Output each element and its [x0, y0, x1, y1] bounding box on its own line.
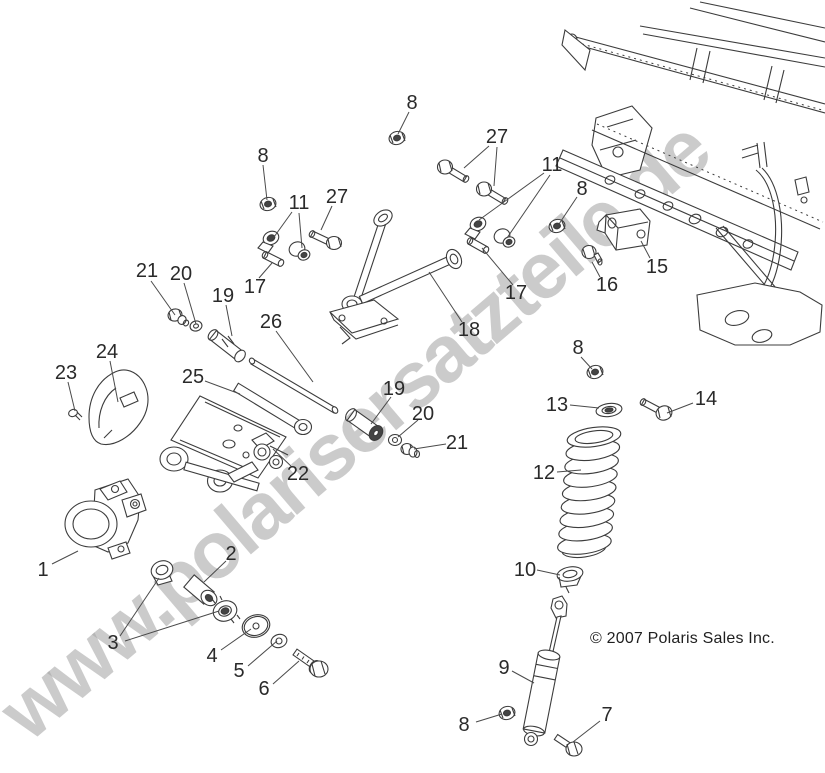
guard-art	[68, 370, 148, 445]
callout-17: 17	[244, 276, 266, 298]
callout-8: 8	[406, 92, 417, 114]
callout-15: 15	[646, 256, 668, 278]
callout-3: 3	[107, 632, 118, 654]
callout-8: 8	[576, 178, 587, 200]
callout-22: 22	[287, 463, 309, 485]
callout-8: 8	[572, 337, 583, 359]
leader-line	[371, 397, 391, 424]
upper-a-arm-art	[330, 207, 464, 344]
leader-line	[125, 611, 219, 641]
bolt-art	[438, 160, 509, 205]
flange-nut-art	[498, 705, 517, 722]
leader-line	[559, 197, 577, 224]
leader-line	[221, 629, 251, 650]
leader-line	[321, 206, 332, 230]
callout-16: 16	[596, 274, 618, 296]
parts-diagram: www.polarisersatzteile.de	[0, 0, 825, 773]
leader-line	[667, 403, 693, 413]
shock-art	[523, 596, 582, 756]
leader-line	[494, 147, 497, 186]
callout-13: 13	[546, 394, 568, 416]
callout-7: 7	[601, 704, 612, 726]
callout-27: 27	[486, 126, 508, 148]
callout-24: 24	[96, 341, 118, 363]
leader-line	[274, 212, 292, 237]
leader-line	[226, 305, 232, 336]
leader-line	[570, 405, 599, 408]
callout-5: 5	[233, 660, 244, 682]
diagram-art: 8271188112715161717188261920212423252219…	[0, 0, 825, 773]
flange-nut-art	[548, 218, 567, 235]
leader-line	[476, 714, 502, 722]
leader-line	[537, 570, 560, 575]
callout-14: 14	[695, 388, 717, 410]
callout-20: 20	[170, 263, 192, 285]
callout-23: 23	[55, 362, 77, 384]
leader-line	[512, 671, 534, 683]
knuckle-art	[65, 479, 146, 559]
callout-1: 1	[37, 559, 48, 581]
leader-line	[52, 551, 78, 564]
callout-9: 9	[498, 657, 509, 679]
callout-21: 21	[446, 432, 468, 454]
leader-line	[263, 165, 267, 200]
callout-12: 12	[533, 462, 555, 484]
callout-11: 11	[542, 154, 563, 176]
copyright-text: © 2007 Polaris Sales Inc.	[590, 630, 775, 648]
leader-line	[68, 382, 75, 411]
flange-nut-art	[259, 196, 278, 213]
callout-2: 2	[225, 543, 236, 565]
callout-6: 6	[258, 678, 269, 700]
leader-line	[414, 444, 446, 449]
callout-26: 26	[260, 311, 282, 333]
callout-18: 18	[458, 319, 480, 341]
leader-line	[276, 331, 313, 382]
mount-bracket-art	[582, 209, 650, 265]
callout-11: 11	[289, 192, 310, 214]
leader-line	[464, 146, 489, 168]
leader-line	[479, 173, 544, 220]
leader-line	[398, 112, 409, 134]
flange-nut-art	[388, 130, 407, 147]
leader-line	[151, 281, 175, 315]
leader-line	[248, 641, 277, 666]
callout-25: 25	[182, 366, 204, 388]
spring-art	[556, 402, 623, 593]
leader-line	[429, 272, 462, 322]
callout-17: 17	[505, 282, 527, 304]
callout-4: 4	[206, 645, 217, 667]
leader-line	[482, 248, 513, 285]
leader-line	[273, 661, 299, 684]
bolt-art	[308, 230, 341, 250]
leader-line	[573, 721, 600, 742]
bolt-art	[639, 398, 674, 423]
callout-19: 19	[383, 378, 405, 400]
callout-21: 21	[136, 260, 158, 282]
callout-19: 19	[212, 285, 234, 307]
flange-nut-art	[586, 364, 605, 381]
callout-27: 27	[326, 186, 348, 208]
callout-10: 10	[514, 559, 536, 581]
callout-8: 8	[458, 714, 469, 736]
callout-8: 8	[257, 145, 268, 167]
callout-20: 20	[412, 403, 434, 425]
leader-line	[204, 561, 226, 582]
leader-line	[120, 578, 159, 636]
leader-line	[205, 381, 240, 394]
